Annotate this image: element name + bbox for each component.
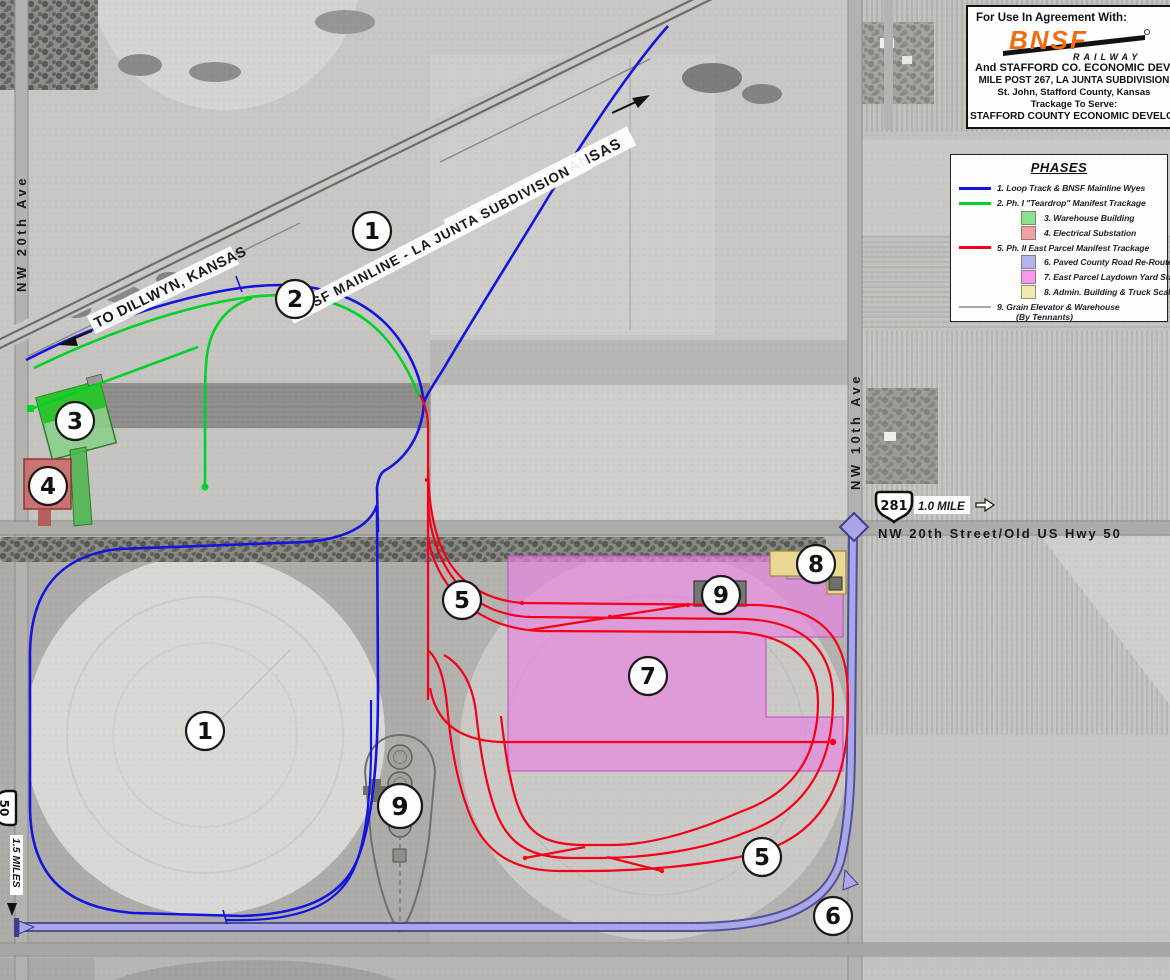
legend-item-teardrop: 2. Ph. I "Teardrop" Manifest Trackage [951, 196, 1167, 211]
marker-5-south: 5 [743, 838, 781, 876]
svg-text:5: 5 [754, 845, 770, 871]
legend-item-east-parcel-track: 5. Ph. II East Parcel Manifest Trackage [951, 240, 1167, 255]
marker-2-teardrop: 2 [276, 280, 314, 318]
svg-text:NW 20th Ave: NW 20th Ave [14, 175, 29, 292]
title-block: For Use In Agreement With: BNSF RAILWAY … [966, 5, 1170, 129]
red-line-swatch [959, 246, 991, 249]
bnsf-logo: BNSF RAILWAY [995, 26, 1153, 62]
svg-text:2: 2 [287, 287, 303, 313]
svg-text:1: 1 [364, 219, 380, 245]
svg-text:RAILWAY: RAILWAY [1073, 52, 1141, 62]
agreement-line5: STAFFORD COUNTY ECONOMIC DEVELOPM [968, 111, 1170, 123]
legend-item-road-reroute: 6. Paved County Road Re-Route [951, 255, 1167, 270]
svg-text:8: 8 [808, 552, 824, 578]
marker-1-wye: 1 [353, 212, 391, 250]
legend-item-substation: 4. Electrical Substation [951, 225, 1167, 240]
svg-text:5: 5 [454, 588, 470, 614]
agreement-heading: For Use In Agreement With: [968, 10, 1170, 25]
svg-text:281: 281 [880, 499, 907, 514]
green-line-swatch [959, 202, 991, 205]
route-50-shield: 50 [0, 791, 16, 825]
pink-box-swatch [1021, 270, 1036, 284]
marker-5-north: 5 [443, 581, 481, 619]
svg-text:3: 3 [67, 409, 83, 435]
legend-title: PHASES [951, 160, 1167, 175]
legend-item-warehouse: 3. Warehouse Building [951, 211, 1167, 226]
marker-1-loop: 1 [186, 712, 224, 750]
svg-text:1.5 MILES: 1.5 MILES [10, 838, 22, 888]
svg-text:7: 7 [640, 664, 656, 690]
agreement-line2: MILE POST 267, LA JUNTA SUBDIVISION [968, 75, 1170, 87]
purple-box-swatch [1021, 255, 1036, 269]
label-nw-20th-street: NW 20th Street/Old US Hwy 50 [878, 526, 1122, 541]
marker-8-admin: 8 [797, 545, 835, 583]
legend-item-laydown-yard: 7. East Parcel Laydown Yard Stabilizatio… [951, 270, 1167, 285]
marker-9-warehouse: 9 [702, 576, 740, 614]
svg-text:4: 4 [40, 474, 56, 500]
svg-text:9: 9 [713, 583, 729, 609]
marker-9-elevator: 9 [378, 784, 422, 828]
marker-7-laydown: 7 [629, 657, 667, 695]
svg-text:1.0 MILE: 1.0 MILE [918, 501, 965, 513]
blue-line-swatch [959, 187, 991, 190]
red-box-swatch [1021, 226, 1036, 240]
marker-6-reroute: 6 [814, 897, 852, 935]
agreement-line1: And STAFFORD CO. ECONOMIC DEV [968, 62, 1170, 75]
svg-text:1: 1 [197, 719, 213, 745]
yellow-box-swatch [1021, 285, 1036, 299]
svg-text:50: 50 [0, 800, 11, 817]
site-plan-page: { "title_block": { "heading": "For Use I… [0, 0, 1170, 980]
agreement-line3: St. John, Stafford County, Kansas [968, 87, 1170, 99]
svg-text:BNSF: BNSF [1009, 26, 1088, 55]
aerial-site-map: TO ST. JOHN , KANSAS TO DILLWYN, KANSAS … [0, 0, 1170, 980]
svg-text:NW 10th Ave: NW 10th Ave [848, 373, 863, 490]
marker-3-warehouse: 3 [56, 402, 94, 440]
green-box-swatch [1021, 211, 1036, 225]
svg-text:9: 9 [391, 792, 408, 821]
label-nw-10th-ave: NW 10th Ave [848, 373, 863, 490]
legend-item-grain-elevator-sub: (By Tennants) [951, 312, 1167, 322]
marker-4-substation: 4 [29, 467, 67, 505]
aerial-background [0, 0, 1170, 980]
svg-text:6: 6 [825, 904, 841, 930]
legend-item-admin-building: 8. Admin. Building & Truck Scales [951, 285, 1167, 300]
legend-item-loop-track: 1. Loop Track & BNSF Mainline Wyes [951, 181, 1167, 196]
phases-legend: PHASES 1. Loop Track & BNSF Mainline Wye… [950, 154, 1168, 322]
label-nw-20th-ave: NW 20th Ave [14, 175, 29, 292]
gray-line-swatch [959, 306, 991, 308]
agreement-line4: Trackage To Serve: [968, 99, 1170, 111]
